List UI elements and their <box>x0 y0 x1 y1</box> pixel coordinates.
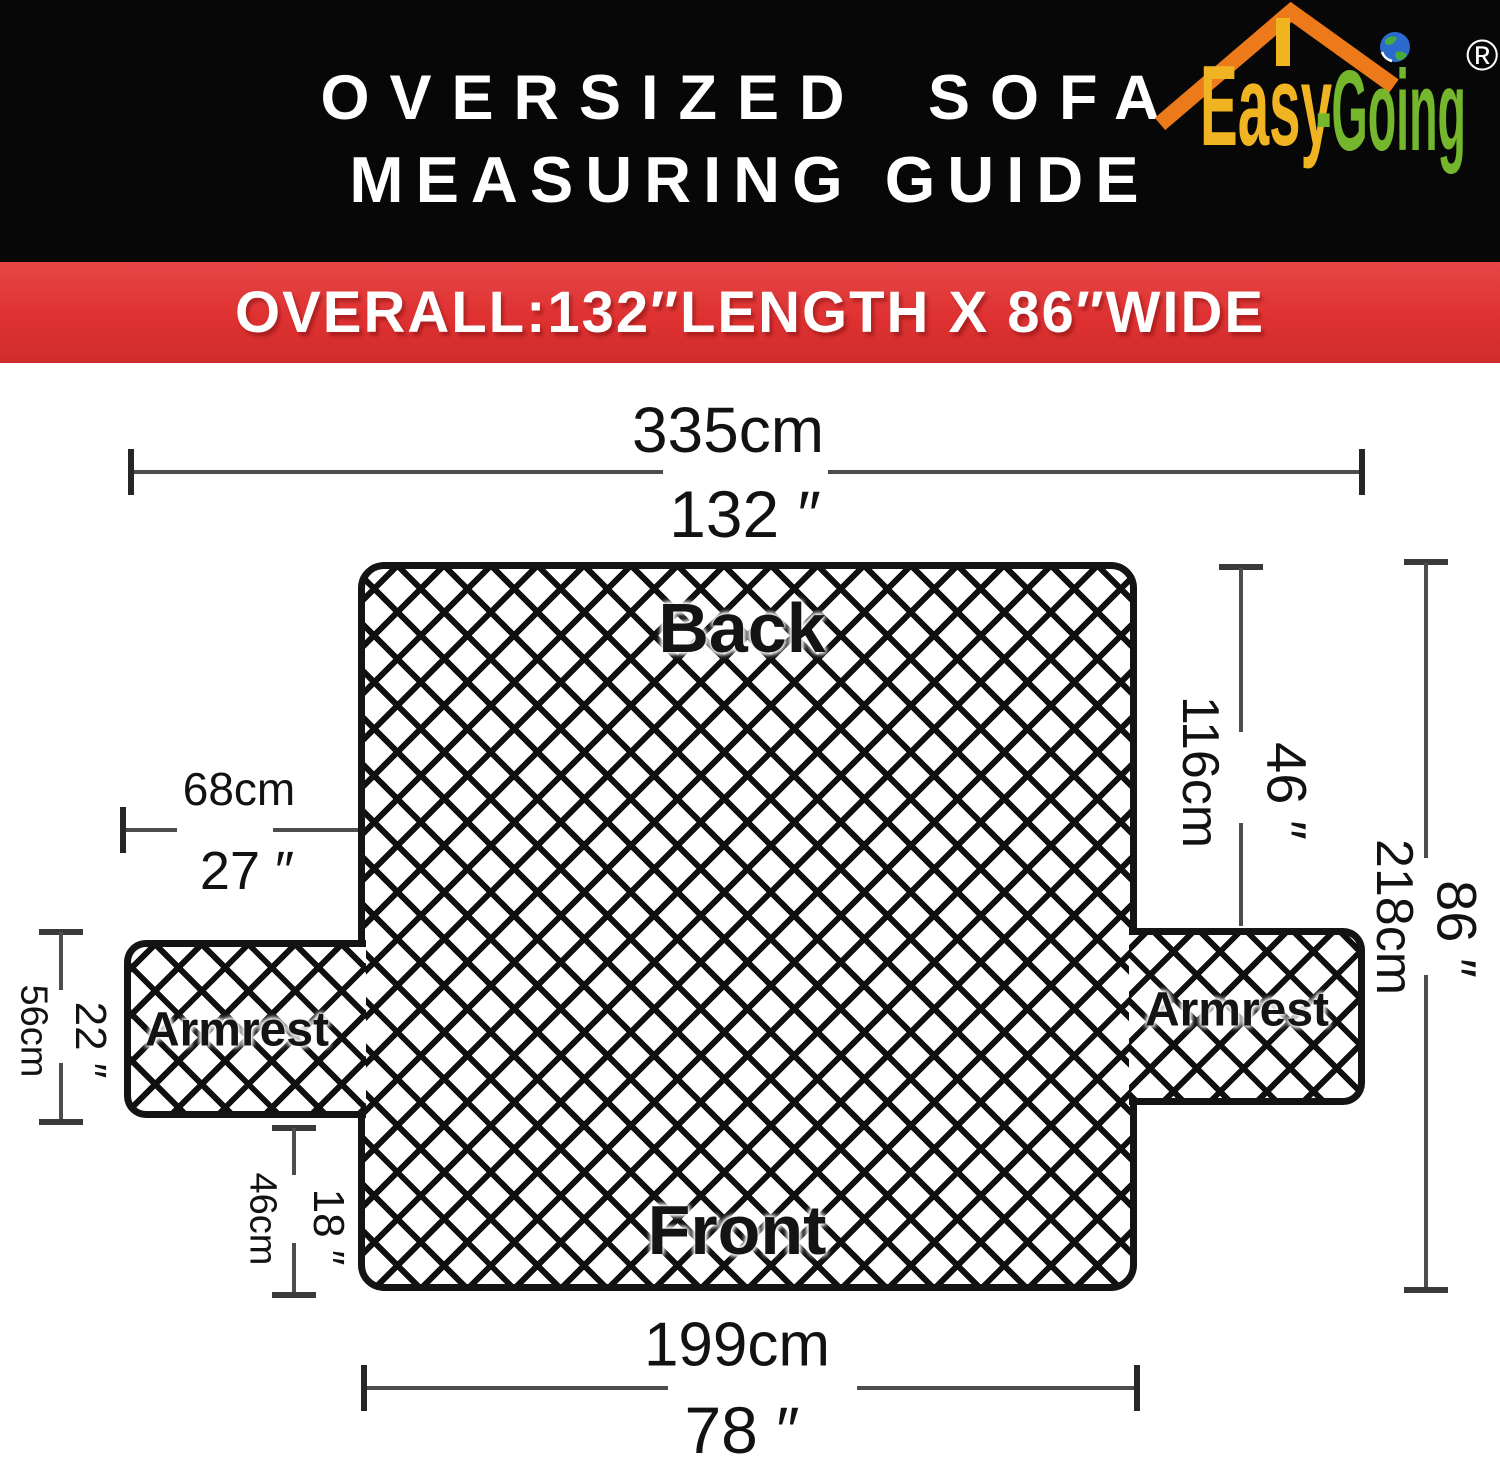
dim-armrest-depth-line <box>123 828 177 832</box>
dim-front-skirt-inch: 18 ″ <box>303 1189 353 1266</box>
dim-seat-front-cm: 199cm <box>644 1310 830 1381</box>
dim-armrest-height-line <box>59 932 63 990</box>
dim-overall-width-cm: 218cm <box>1364 839 1424 995</box>
dim-overall-length-tick <box>1359 449 1365 495</box>
dim-back-height-inch: 46 ″ <box>1255 742 1320 840</box>
measuring-guide-infographic: OVERSIZED SOFA MEASURING GUIDE Easy -Goi… <box>0 0 1500 1462</box>
dim-overall-width-inch: 86 ″ <box>1425 880 1490 978</box>
globe-icon <box>1380 32 1410 62</box>
dim-back-height-line <box>1239 568 1243 732</box>
dim-armrest-depth-tick <box>120 807 126 853</box>
dim-overall-length-line <box>131 470 663 474</box>
easy-going-logo: Easy -Going ® <box>1148 2 1498 184</box>
dim-armrest-height-bar <box>39 1119 83 1125</box>
dim-armrest-depth-cm: 68cm <box>183 762 295 816</box>
overall-size-text: OVERALL:132″LENGTH X 86″WIDE <box>235 279 1265 346</box>
registered-mark: ® <box>1466 31 1498 80</box>
dim-front-skirt-line <box>292 1243 296 1294</box>
header-black-bar: OVERSIZED SOFA MEASURING GUIDE Easy -Goi… <box>0 0 1500 262</box>
dim-seat-front-line <box>857 1386 1139 1390</box>
label-back: Back <box>658 588 825 668</box>
dim-overall-width-bar <box>1404 1287 1448 1293</box>
logo-text-easy: Easy <box>1200 43 1332 170</box>
dim-back-height-cm: 116cm <box>1170 696 1230 848</box>
dim-overall-length-cm: 335cm <box>632 393 824 467</box>
dim-front-skirt-bar <box>272 1292 316 1298</box>
dim-overall-length-inch: 132 ″ <box>669 476 821 552</box>
logo-text-going: -Going <box>1316 48 1466 175</box>
label-armrest-right: Armrest <box>1145 983 1329 1038</box>
dim-front-skirt-cm: 46cm <box>241 1173 284 1266</box>
dim-overall-length-line <box>828 470 1362 474</box>
overall-size-banner: OVERALL:132″LENGTH X 86″WIDE <box>0 262 1500 363</box>
sofa-cover-body <box>358 562 1137 1291</box>
label-armrest-left: Armrest <box>145 1003 329 1058</box>
dim-armrest-height-cm: 56cm <box>12 985 55 1078</box>
dim-seat-front-inch: 78 ″ <box>684 1392 799 1462</box>
dim-armrest-height-inch: 22 ″ <box>65 1002 115 1079</box>
dim-overall-width-line <box>1424 975 1428 1289</box>
dim-armrest-depth-inch: 27 ″ <box>200 840 294 902</box>
dim-overall-width-line <box>1424 563 1428 858</box>
dim-armrest-depth-line <box>273 828 358 832</box>
dim-seat-front-line <box>364 1386 668 1390</box>
dim-armrest-height-line <box>59 1063 63 1121</box>
dim-seat-front-tick <box>1134 1365 1140 1411</box>
dim-overall-length-tick <box>128 449 134 495</box>
label-front: Front <box>648 1190 827 1270</box>
dim-back-height-line <box>1239 823 1243 926</box>
dim-seat-front-tick <box>361 1365 367 1411</box>
dim-front-skirt-line <box>292 1128 296 1175</box>
